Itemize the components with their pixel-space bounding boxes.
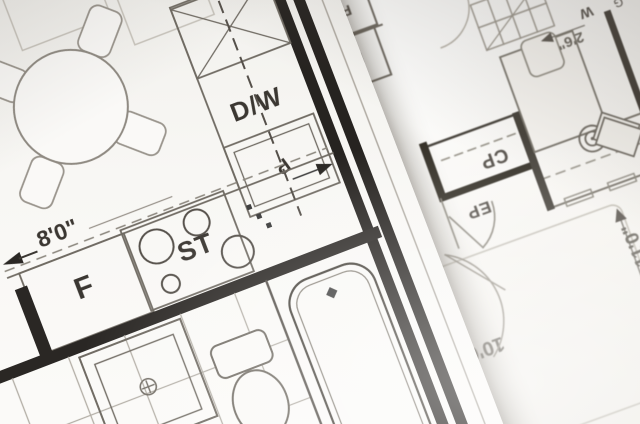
left-wall-stub [15, 285, 54, 359]
exterior-wall [604, 10, 640, 123]
stove-label: ST [173, 227, 218, 268]
floorplan-photo: 10'0" 11'0" [0, 0, 640, 424]
svg-text:11'0": 11'0" [618, 221, 640, 270]
corner-label: G [612, 0, 626, 11]
tub-drain-icon [324, 285, 340, 301]
wall-arrow [291, 158, 335, 184]
svg-text:2'6": 2'6" [555, 28, 587, 53]
svg-text:8'0": 8'0" [33, 214, 81, 253]
dining-table [0, 33, 145, 180]
fridge-label: F [70, 269, 100, 307]
ep-label: EP [464, 197, 494, 223]
toilet [209, 328, 300, 424]
dining-set [0, 0, 200, 240]
closet-label-cp: CP [477, 143, 511, 172]
door-arc-faint [428, 0, 480, 48]
dimension-11ft: 11'0" [611, 203, 640, 294]
window-label: W [577, 3, 596, 23]
dishwasher-label: D/W [226, 81, 287, 128]
corner-cabinet [171, 0, 291, 79]
bed [498, 24, 607, 152]
